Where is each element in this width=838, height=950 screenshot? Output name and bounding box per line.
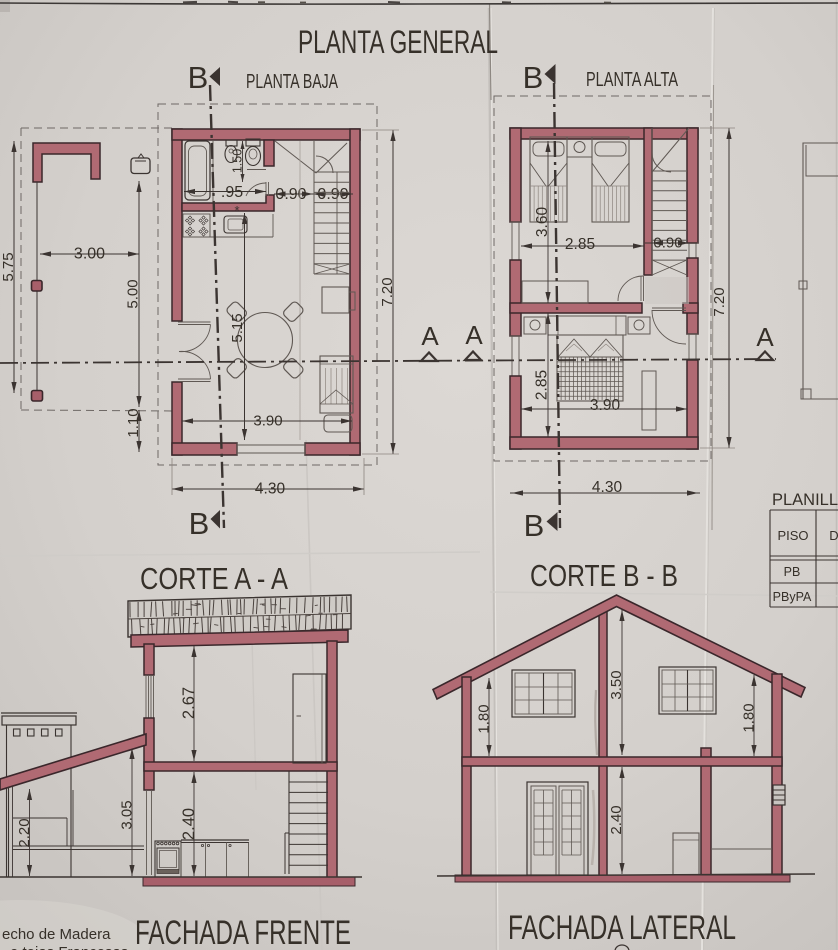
svg-text:3.05: 3.05	[119, 800, 136, 829]
svg-text:2.67: 2.67	[180, 687, 198, 719]
svg-text:1.80: 1.80	[741, 703, 758, 732]
svg-text:PISO: PISO	[777, 528, 808, 543]
svg-text:3.50: 3.50	[608, 670, 625, 699]
svg-text:7.20: 7.20	[379, 277, 396, 306]
svg-text:PByPA: PByPA	[773, 590, 812, 604]
svg-text:2.85: 2.85	[534, 370, 551, 400]
svg-text:4.30: 4.30	[592, 479, 623, 496]
svg-text:FACHADA LATERAL: FACHADA LATERAL	[508, 909, 736, 947]
svg-text:.95: .95	[221, 184, 243, 201]
svg-text:FACHADA FRENTE: FACHADA FRENTE	[135, 914, 351, 950]
svg-text:A: A	[421, 321, 439, 351]
svg-text:3.90: 3.90	[590, 397, 621, 414]
svg-text:2.85: 2.85	[565, 236, 595, 253]
svg-text:0.90: 0.90	[275, 186, 306, 203]
svg-text:3.60: 3.60	[534, 207, 551, 238]
svg-text:PLANILL: PLANILL	[772, 490, 838, 509]
svg-text:4.30: 4.30	[255, 481, 286, 498]
svg-text:A: A	[465, 320, 483, 350]
svg-text:5.15: 5.15	[229, 313, 246, 342]
svg-text:B: B	[523, 60, 544, 95]
svg-text:CORTE B - B: CORTE B - B	[530, 558, 678, 593]
svg-text:PB: PB	[784, 565, 801, 579]
svg-text:PLANTA BAJA: PLANTA BAJA	[246, 71, 338, 93]
svg-text:B: B	[189, 506, 210, 541]
svg-text:B: B	[524, 508, 545, 543]
svg-text:1.50: 1.50	[231, 149, 245, 173]
svg-text:2.20: 2.20	[16, 818, 33, 847]
svg-text:5.00: 5.00	[125, 279, 142, 308]
svg-text:A: A	[756, 322, 774, 352]
svg-text:3.00: 3.00	[74, 246, 105, 263]
svg-text:0.90: 0.90	[653, 235, 682, 252]
svg-text:0.90: 0.90	[317, 186, 348, 203]
svg-text:CORTE A - A: CORTE A - A	[140, 561, 288, 596]
svg-text:5.75: 5.75	[0, 252, 17, 281]
svg-text:e tejas Francesas: e tejas Francesas	[10, 944, 128, 950]
svg-text:1.10: 1.10	[125, 408, 142, 437]
svg-text:B: B	[188, 60, 209, 95]
svg-text:D: D	[829, 528, 838, 543]
svg-text:PLANTA GENERAL: PLANTA GENERAL	[298, 24, 498, 60]
svg-text:echo de Madera: echo de Madera	[2, 926, 111, 943]
svg-text:1.80: 1.80	[476, 704, 493, 733]
svg-text:2.40: 2.40	[180, 808, 198, 840]
svg-text:7.20: 7.20	[711, 287, 728, 316]
svg-text:2.40: 2.40	[608, 805, 625, 834]
svg-text:3.90: 3.90	[253, 413, 282, 430]
svg-text:PLANTA ALTA: PLANTA ALTA	[586, 69, 678, 91]
